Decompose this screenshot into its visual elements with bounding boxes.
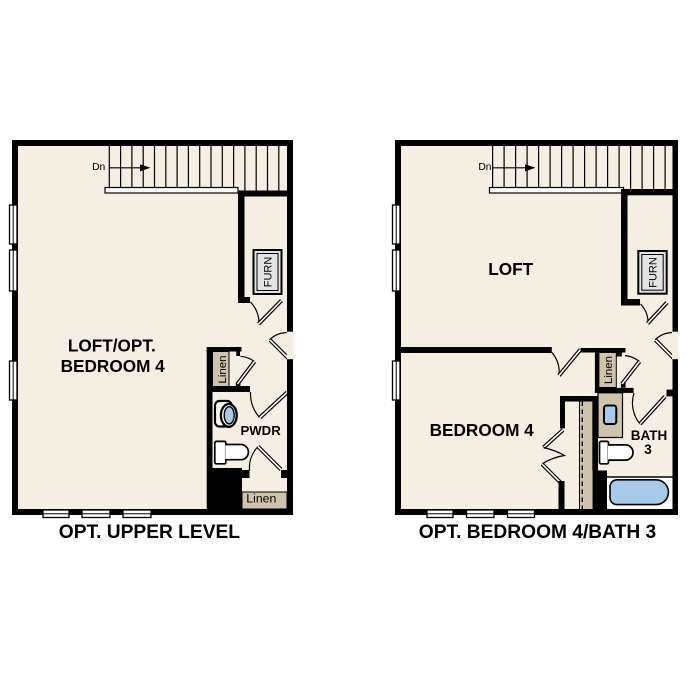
svg-text:Linen: Linen (217, 356, 229, 384)
svg-text:Dn: Dn (478, 162, 491, 173)
svg-text:BATH: BATH (631, 428, 668, 443)
svg-text:Linen: Linen (603, 356, 615, 384)
svg-text:LOFT: LOFT (488, 259, 533, 279)
svg-text:BEDROOM 4: BEDROOM 4 (61, 356, 166, 376)
svg-text:LOFT/OPT.: LOFT/OPT. (68, 336, 156, 356)
svg-text:PWDR: PWDR (240, 423, 281, 438)
svg-text:3: 3 (644, 442, 652, 457)
svg-text:FURN: FURN (647, 257, 659, 288)
svg-text:Linen: Linen (246, 492, 276, 506)
svg-text:Dn: Dn (92, 162, 105, 173)
svg-text:OPT. BEDROOM 4/BATH 3: OPT. BEDROOM 4/BATH 3 (419, 522, 656, 543)
svg-text:FURN: FURN (262, 257, 274, 288)
svg-text:BEDROOM 4: BEDROOM 4 (430, 420, 535, 440)
svg-text:OPT. UPPER LEVEL: OPT. UPPER LEVEL (59, 522, 241, 543)
